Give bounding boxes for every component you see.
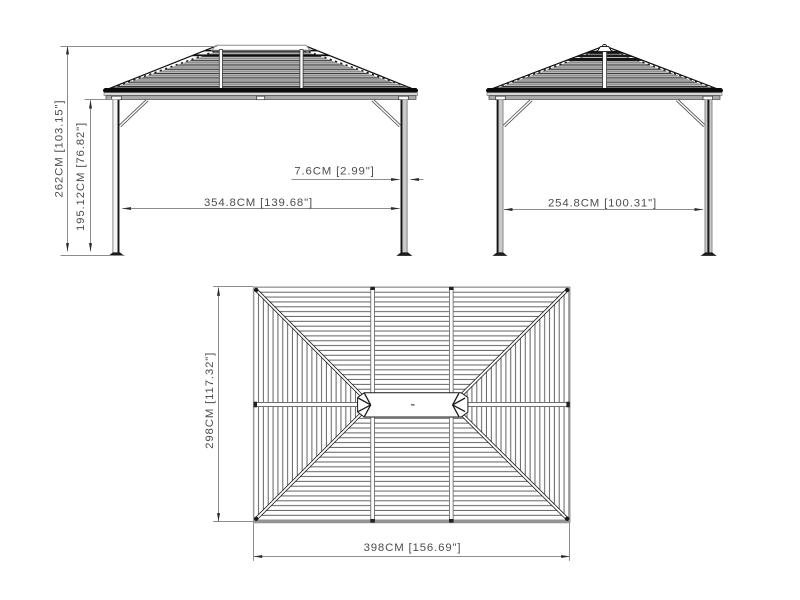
svg-text:254.8CM [100.31"]: 254.8CM [100.31"] (548, 197, 657, 209)
svg-text:262CM [103.15"]: 262CM [103.15"] (53, 100, 65, 198)
svg-text:354.8CM [139.68"]: 354.8CM [139.68"] (204, 197, 313, 209)
svg-text:298CM [117.32"]: 298CM [117.32"] (204, 352, 216, 449)
svg-text:7.6CM [2.99"]: 7.6CM [2.99"] (294, 165, 374, 177)
svg-text:398CM [156.69"]: 398CM [156.69"] (364, 542, 462, 554)
svg-text:195.12CM [76.82"]: 195.12CM [76.82"] (75, 122, 87, 231)
